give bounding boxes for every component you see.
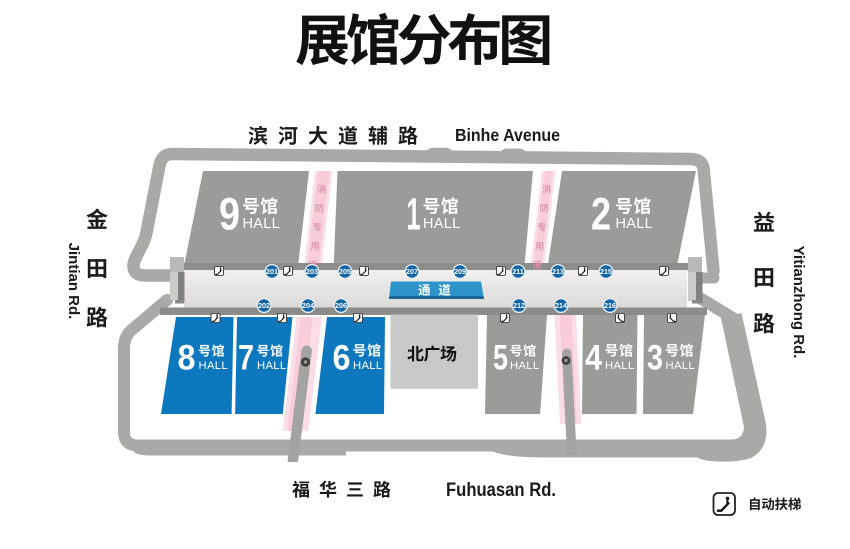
svg-text:HALL: HALL — [616, 216, 653, 232]
svg-text:HALL: HALL — [243, 216, 280, 232]
svg-text:209: 209 — [454, 267, 466, 276]
svg-text:Jintian Rd.: Jintian Rd. — [65, 243, 82, 320]
svg-text:214: 214 — [555, 301, 567, 310]
svg-text:207: 207 — [406, 267, 418, 276]
svg-text:1: 1 — [407, 189, 421, 240]
svg-text:3: 3 — [647, 339, 663, 378]
svg-text:2: 2 — [591, 189, 611, 240]
svg-text:4: 4 — [585, 339, 602, 378]
svg-text:206: 206 — [335, 301, 347, 310]
svg-text:Binhe Avenue: Binhe Avenue — [455, 125, 560, 145]
svg-text:205: 205 — [339, 267, 351, 276]
svg-text:HALL: HALL — [257, 360, 286, 372]
svg-text:204: 204 — [302, 301, 314, 310]
svg-text:HALL: HALL — [423, 216, 460, 232]
svg-text:215: 215 — [600, 267, 612, 276]
svg-text:HALL: HALL — [666, 360, 695, 372]
svg-text:202: 202 — [258, 301, 270, 310]
svg-text:8: 8 — [178, 339, 196, 378]
svg-text:9: 9 — [219, 189, 240, 240]
svg-text:HALL: HALL — [605, 360, 634, 372]
svg-text:HALL: HALL — [199, 360, 228, 372]
svg-text:201: 201 — [266, 267, 278, 276]
svg-text:216: 216 — [604, 301, 616, 310]
svg-text:HALL: HALL — [510, 360, 539, 372]
svg-text:Yitianzhong Rd.: Yitianzhong Rd. — [790, 246, 807, 359]
svg-text:212: 212 — [513, 301, 525, 310]
svg-text:211: 211 — [512, 267, 524, 276]
svg-text:213: 213 — [552, 267, 564, 276]
svg-text:5: 5 — [493, 339, 508, 378]
svg-text:HALL: HALL — [353, 360, 382, 372]
svg-text:7: 7 — [238, 339, 254, 378]
svg-text:203: 203 — [306, 267, 318, 276]
svg-text:6: 6 — [333, 339, 351, 378]
svg-text:Fuhuasan Rd.: Fuhuasan Rd. — [446, 480, 556, 501]
